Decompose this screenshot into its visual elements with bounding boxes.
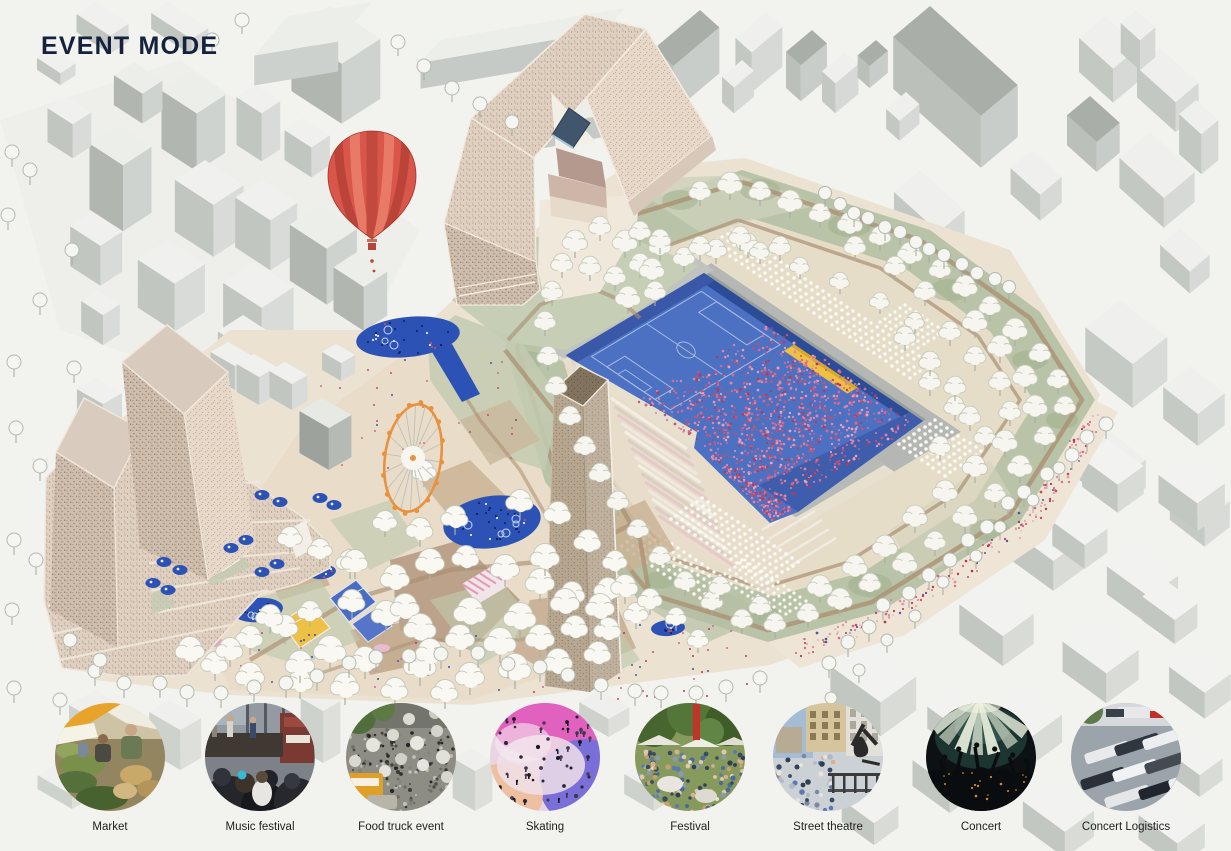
svg-text:Concert: Concert xyxy=(961,821,1002,833)
svg-text:Concert Logistics: Concert Logistics xyxy=(1082,821,1170,833)
svg-text:Music festival: Music festival xyxy=(225,821,294,833)
svg-text:Festival: Festival xyxy=(670,821,710,833)
svg-text:Skating: Skating xyxy=(526,821,564,833)
svg-text:EVENT MODE: EVENT MODE xyxy=(41,32,218,60)
svg-text:Street theatre: Street theatre xyxy=(793,821,863,833)
svg-text:Food truck event: Food truck event xyxy=(358,821,444,833)
svg-text:Market: Market xyxy=(92,821,128,833)
